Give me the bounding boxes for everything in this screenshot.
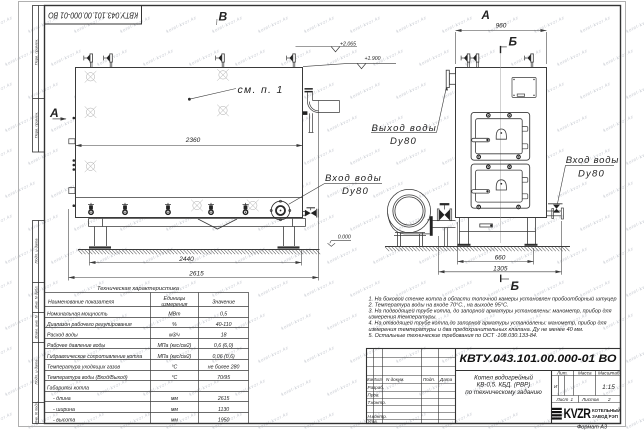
svg-text:Вход воды: Вход воды bbox=[325, 173, 382, 184]
svg-text:мм: мм bbox=[171, 396, 179, 402]
svg-text:1: 1 bbox=[571, 397, 574, 402]
svg-text:%: % bbox=[172, 322, 177, 328]
svg-text:+1.900: +1.900 bbox=[365, 56, 381, 62]
svg-text:2615: 2615 bbox=[217, 396, 230, 402]
svg-text:Лист: Лист bbox=[556, 397, 569, 402]
svg-text:2615: 2615 bbox=[188, 270, 204, 277]
svg-text:660: 660 bbox=[495, 254, 506, 261]
svg-text:МВт: МВт bbox=[168, 311, 181, 317]
svg-text:Разраб.: Разраб. bbox=[368, 385, 385, 390]
svg-text:Подп. и дата: Подп. и дата bbox=[34, 238, 39, 264]
svg-text:А: А bbox=[49, 106, 59, 120]
svg-text:Масса: Масса bbox=[578, 370, 592, 375]
svg-text:по техническому заданию: по техническому заданию bbox=[465, 389, 542, 396]
svg-text:МПа (кгс/см2): МПа (кгс/см2) bbox=[157, 354, 191, 360]
svg-text:Рабочее давление воды: Рабочее давление воды bbox=[47, 343, 105, 349]
svg-text:0.000: 0.000 bbox=[338, 234, 351, 240]
svg-text:Перв. примен.: Перв. примен. bbox=[34, 112, 39, 139]
svg-text:0,06 (0,6): 0,06 (0,6) bbox=[212, 354, 234, 360]
svg-text:Пров.: Пров. bbox=[368, 392, 380, 397]
svg-text:Габариты котла: Габариты котла bbox=[47, 386, 89, 392]
svg-text:Dy80: Dy80 bbox=[390, 136, 417, 147]
svg-text:- высота: - высота bbox=[53, 417, 75, 423]
svg-text:В: В bbox=[219, 10, 228, 24]
svg-text:Диапазон рабочего регулировани: Диапазон рабочего регулирования bbox=[46, 322, 132, 328]
svg-text:Температура уходящих газов: Температура уходящих газов bbox=[47, 364, 120, 370]
svg-text:Формат А3: Формат А3 bbox=[577, 424, 608, 430]
svg-text:2360: 2360 bbox=[185, 137, 201, 144]
svg-text:5. Остальные технические треб: 5. Остальные технические требования по О… bbox=[369, 333, 538, 339]
svg-text:1305: 1305 bbox=[493, 266, 508, 273]
svg-text:2: 2 bbox=[607, 397, 611, 402]
svg-text:Наименование показателя: Наименование показателя bbox=[48, 299, 114, 305]
svg-text:Перв. примен.: Перв. примен. bbox=[34, 39, 39, 66]
svg-text:Температура воды (Вход/Выход): Температура воды (Вход/Выход) bbox=[47, 375, 128, 381]
svg-text:°С: °С bbox=[171, 375, 177, 381]
svg-text:Т.контр.: Т.контр. bbox=[368, 400, 387, 405]
svg-text:Б: Б bbox=[511, 279, 520, 293]
svg-text:измерения: измерения bbox=[161, 302, 187, 308]
svg-text:- ширина: - ширина bbox=[53, 407, 75, 413]
svg-text:Лит.: Лит. bbox=[556, 370, 568, 375]
svg-text:3. На подводящей трубе котла,: 3. На подводящей трубе котла, до запорно… bbox=[369, 308, 612, 315]
svg-text:Инв. N дубл.: Инв. N дубл. bbox=[34, 285, 39, 308]
svg-text:КВТУ.043.101.00.000-01 ВО: КВТУ.043.101.00.000-01 ВО bbox=[460, 353, 617, 365]
svg-text:Вход воды: Вход воды bbox=[566, 155, 619, 166]
svg-text:Гидравлическое сопротивление к: Гидравлическое сопротивление котла bbox=[47, 354, 142, 360]
svg-text:40-110: 40-110 bbox=[216, 322, 232, 328]
svg-text:18: 18 bbox=[221, 333, 227, 339]
svg-text:70/95: 70/95 bbox=[217, 375, 230, 381]
svg-text:Дата: Дата bbox=[439, 377, 453, 382]
svg-text:Техническая характеристика: Техническая характеристика bbox=[97, 286, 180, 292]
svg-text:ЗАВОД РЭП: ЗАВОД РЭП bbox=[592, 414, 618, 419]
svg-text:Утв.: Утв. bbox=[368, 419, 378, 424]
svg-text:КОТЕЛЬНЫЙ: КОТЕЛЬНЫЙ bbox=[592, 408, 621, 413]
svg-text:2. Температура воды на входе: 2. Температура воды на входе 70°С., на в… bbox=[368, 302, 509, 308]
svg-text:Взам. инв. N: Взам. инв. N bbox=[34, 315, 39, 338]
svg-text:Инв. N подл.: Инв. N подл. bbox=[34, 401, 39, 424]
svg-text:Листов: Листов bbox=[581, 397, 599, 402]
svg-text:м3/ч: м3/ч bbox=[169, 333, 180, 339]
svg-text:не более 280: не более 280 bbox=[208, 364, 240, 370]
svg-text:КВ-0,5. КБД. (РВР): КВ-0,5. КБД. (РВР) bbox=[477, 382, 531, 389]
svg-text:Б: Б bbox=[509, 35, 518, 49]
svg-text:МПа (кгс/см2): МПа (кгс/см2) bbox=[157, 343, 191, 349]
svg-text:Котел водогрейный: Котел водогрейный bbox=[474, 374, 533, 381]
svg-text:2440: 2440 bbox=[178, 256, 194, 263]
svg-text:1. На боковой стенке котла в: 1. На боковой стенке котла в области топ… bbox=[369, 295, 617, 302]
svg-text:измерения температуры.: измерения температуры. bbox=[369, 315, 437, 321]
svg-text:КВТУ.043.101.00.000-01 ВО: КВТУ.043.101.00.000-01 ВО bbox=[48, 10, 138, 19]
svg-text:мм: мм bbox=[171, 417, 179, 423]
svg-text:Dy80: Dy80 bbox=[578, 169, 605, 180]
svg-text:измерения температуры и два пр: измерения температуры и два предохраните… bbox=[369, 327, 584, 333]
svg-text:Расход воды: Расход воды bbox=[47, 333, 78, 339]
svg-text:+2.065: +2.065 bbox=[340, 41, 356, 47]
svg-text:4. На отводящей трубе котла,д: 4. На отводящей трубе котла,до запорной … bbox=[369, 320, 607, 327]
svg-text:Номинальная мощность: Номинальная мощность bbox=[47, 311, 108, 317]
svg-text:мм: мм bbox=[171, 407, 179, 413]
svg-text:Масштаб: Масштаб bbox=[598, 370, 620, 375]
svg-text:N докум.: N докум. bbox=[386, 377, 405, 382]
svg-text:Подп. и дата: Подп. и дата bbox=[34, 359, 39, 385]
svg-text:Изм.Лист: Изм.Лист bbox=[367, 377, 383, 382]
svg-text:Подп.: Подп. bbox=[423, 377, 435, 382]
svg-text:см. п. 1: см. п. 1 bbox=[238, 84, 284, 96]
svg-text:- длина: - длина bbox=[53, 396, 71, 402]
svg-text:960: 960 bbox=[496, 23, 507, 30]
svg-text:0,6 (6,0): 0,6 (6,0) bbox=[214, 343, 234, 349]
svg-text:Dy80: Dy80 bbox=[342, 186, 369, 197]
svg-text:1130: 1130 bbox=[218, 407, 229, 413]
svg-text:Значение: Значение bbox=[212, 299, 235, 305]
svg-text:0,5: 0,5 bbox=[220, 311, 227, 317]
svg-text:1950: 1950 bbox=[218, 417, 230, 423]
svg-text:А: А bbox=[481, 10, 490, 22]
svg-text:1:15: 1:15 bbox=[602, 384, 615, 391]
svg-text:°С: °С bbox=[171, 364, 177, 370]
svg-text:KVZR: KVZR bbox=[564, 406, 592, 421]
